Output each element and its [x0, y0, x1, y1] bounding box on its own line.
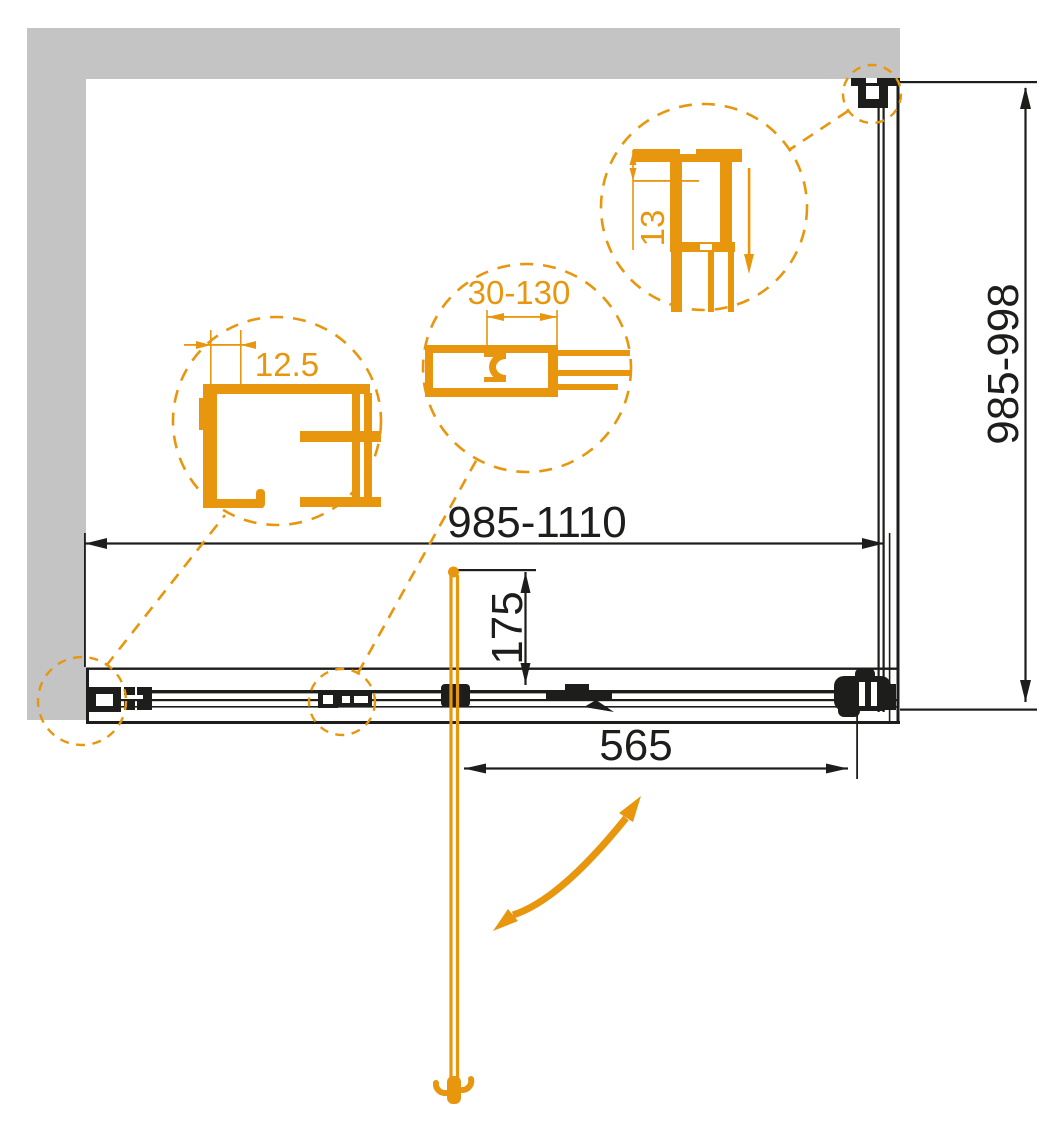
ref-tick — [455, 569, 536, 571]
dim-label-overall-width: 985-1110 — [447, 498, 626, 547]
shower-enclosure-technical-drawing: 985-1110 985-998 175 565 — [0, 0, 1063, 1135]
band-top-line — [86, 668, 898, 670]
detail-label-bracket: 30-130 — [468, 274, 571, 311]
slide-direction-arrow — [748, 168, 751, 258]
drawing-background — [0, 0, 1063, 1135]
track-rail-upper — [140, 690, 852, 693]
track-rail-mid — [86, 699, 898, 701]
dim-label-side-depth: 985-998 — [979, 283, 1028, 444]
bracket-top-bar — [425, 345, 558, 353]
roller-carriage — [441, 684, 470, 707]
profile-left-vertical — [203, 384, 217, 508]
dim-label-door-projection: 175 — [483, 591, 532, 664]
profile-foot — [215, 499, 263, 508]
detail-label-top-profile: 13 — [634, 210, 671, 247]
band-bottom-line — [86, 721, 900, 724]
track-rail-lower — [86, 706, 898, 708]
middle-adjuster-hardware — [318, 691, 372, 708]
bracket-bottom-bar — [425, 388, 558, 397]
ext-line-bottom — [900, 709, 1037, 711]
dim-label-opening-width: 565 — [599, 721, 672, 770]
detail-label-wall-profile: 12.5 — [255, 346, 319, 383]
profile-top-bar — [204, 384, 370, 394]
ext-line-right — [856, 700, 858, 779]
ext-line-left — [84, 533, 86, 667]
